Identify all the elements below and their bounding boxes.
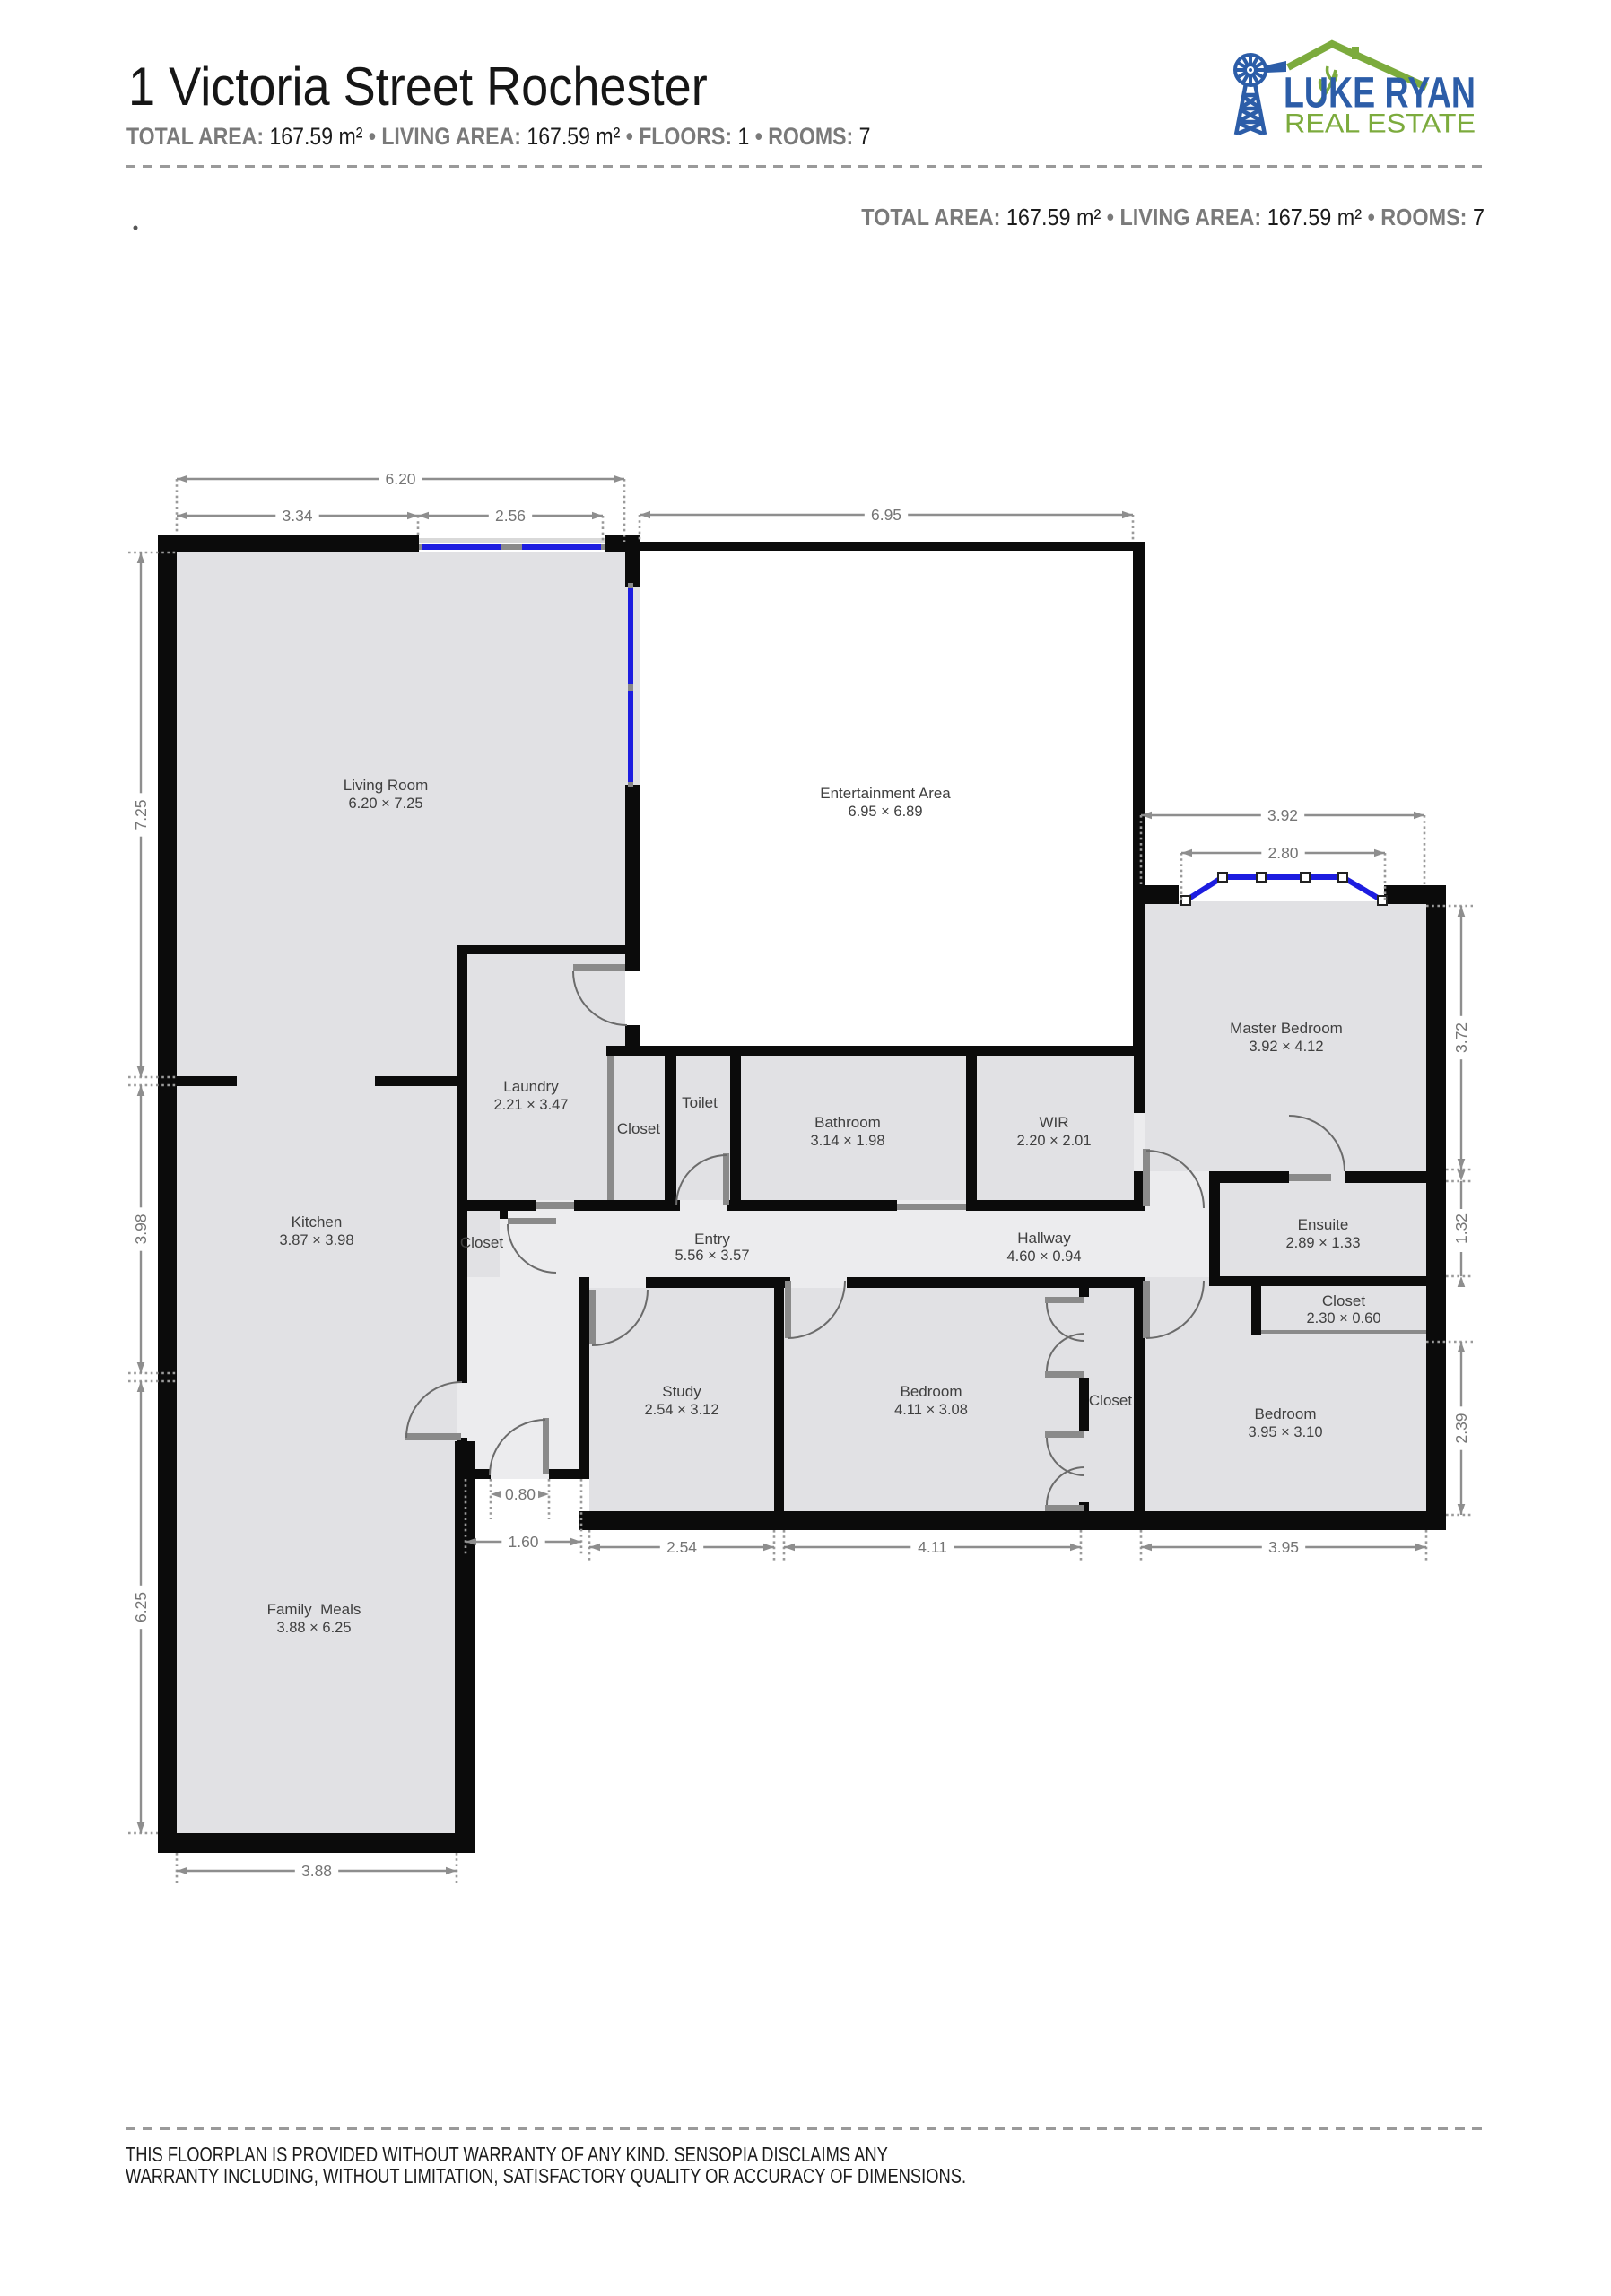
svg-text:3.92 × 4.12: 3.92 × 4.12 [1249, 1039, 1323, 1055]
svg-text:3.95 × 3.10: 3.95 × 3.10 [1248, 1424, 1322, 1440]
svg-text:2.89 × 1.33: 2.89 × 1.33 [1285, 1235, 1360, 1251]
svg-text:Toilet: Toilet [682, 1094, 718, 1111]
svg-text:3.34: 3.34 [282, 507, 312, 525]
svg-text:2.30 × 0.60: 2.30 × 0.60 [1306, 1310, 1380, 1326]
svg-text:2.56: 2.56 [495, 507, 526, 525]
svg-text:3.92: 3.92 [1267, 806, 1298, 824]
svg-text:Bathroom: Bathroom [814, 1114, 881, 1131]
svg-text:7.25: 7.25 [132, 799, 150, 830]
svg-text:Entertainment Area: Entertainment Area [820, 785, 951, 802]
svg-text:Closet: Closet [1089, 1392, 1132, 1409]
svg-text:3.14 × 1.98: 3.14 × 1.98 [810, 1133, 884, 1149]
svg-text:3.87 × 3.98: 3.87 × 3.98 [279, 1232, 353, 1248]
svg-text:3.95: 3.95 [1268, 1538, 1299, 1556]
svg-text:4.60 × 0.94: 4.60 × 0.94 [1006, 1248, 1081, 1265]
svg-text:Living Room: Living Room [344, 777, 429, 794]
svg-text:Master Bedroom: Master Bedroom [1230, 1020, 1343, 1037]
svg-text:2.54 × 3.12: 2.54 × 3.12 [644, 1402, 718, 1418]
svg-text:Laundry: Laundry [503, 1078, 559, 1095]
svg-text:6.20 × 7.25: 6.20 × 7.25 [348, 796, 422, 812]
svg-text:0.80: 0.80 [505, 1485, 536, 1503]
svg-text:1.32: 1.32 [1452, 1213, 1470, 1244]
svg-text:Closet: Closet [460, 1234, 503, 1251]
svg-text:3.72: 3.72 [1452, 1022, 1470, 1053]
svg-text:3.98: 3.98 [132, 1213, 150, 1244]
svg-text:3.88 × 6.25: 3.88 × 6.25 [276, 1620, 351, 1636]
svg-text:2.39: 2.39 [1452, 1413, 1470, 1443]
svg-text:4.11 × 3.08: 4.11 × 3.08 [894, 1402, 968, 1418]
svg-text:Closet: Closet [1322, 1292, 1365, 1309]
svg-text:Bedroom: Bedroom [1255, 1405, 1317, 1422]
svg-text:6.25: 6.25 [132, 1592, 150, 1622]
svg-text:Bedroom: Bedroom [901, 1383, 962, 1400]
svg-text:6.95: 6.95 [871, 506, 901, 524]
svg-text:Hallway: Hallway [1017, 1230, 1071, 1247]
svg-text:2.20 × 2.01: 2.20 × 2.01 [1016, 1133, 1091, 1149]
svg-text:3.88: 3.88 [301, 1862, 332, 1880]
svg-text:2.80: 2.80 [1267, 844, 1298, 862]
svg-text:Family Meals: Family Meals [267, 1601, 361, 1618]
svg-text:4.11: 4.11 [918, 1538, 947, 1556]
svg-text:6.95 × 6.89: 6.95 × 6.89 [848, 804, 922, 820]
svg-text:Ensuite: Ensuite [1298, 1216, 1349, 1233]
svg-text:Study: Study [662, 1383, 701, 1400]
svg-text:WIR: WIR [1039, 1114, 1068, 1131]
svg-text:Closet: Closet [617, 1120, 660, 1137]
svg-text:6.20: 6.20 [385, 470, 415, 488]
svg-text:Entry: Entry [694, 1231, 730, 1248]
svg-text:2.54: 2.54 [666, 1538, 697, 1556]
svg-text:5.56 × 3.57: 5.56 × 3.57 [675, 1248, 749, 1264]
svg-text:2.21 × 3.47: 2.21 × 3.47 [493, 1097, 568, 1113]
svg-text:Kitchen: Kitchen [292, 1213, 343, 1231]
svg-text:1.60: 1.60 [508, 1533, 538, 1551]
